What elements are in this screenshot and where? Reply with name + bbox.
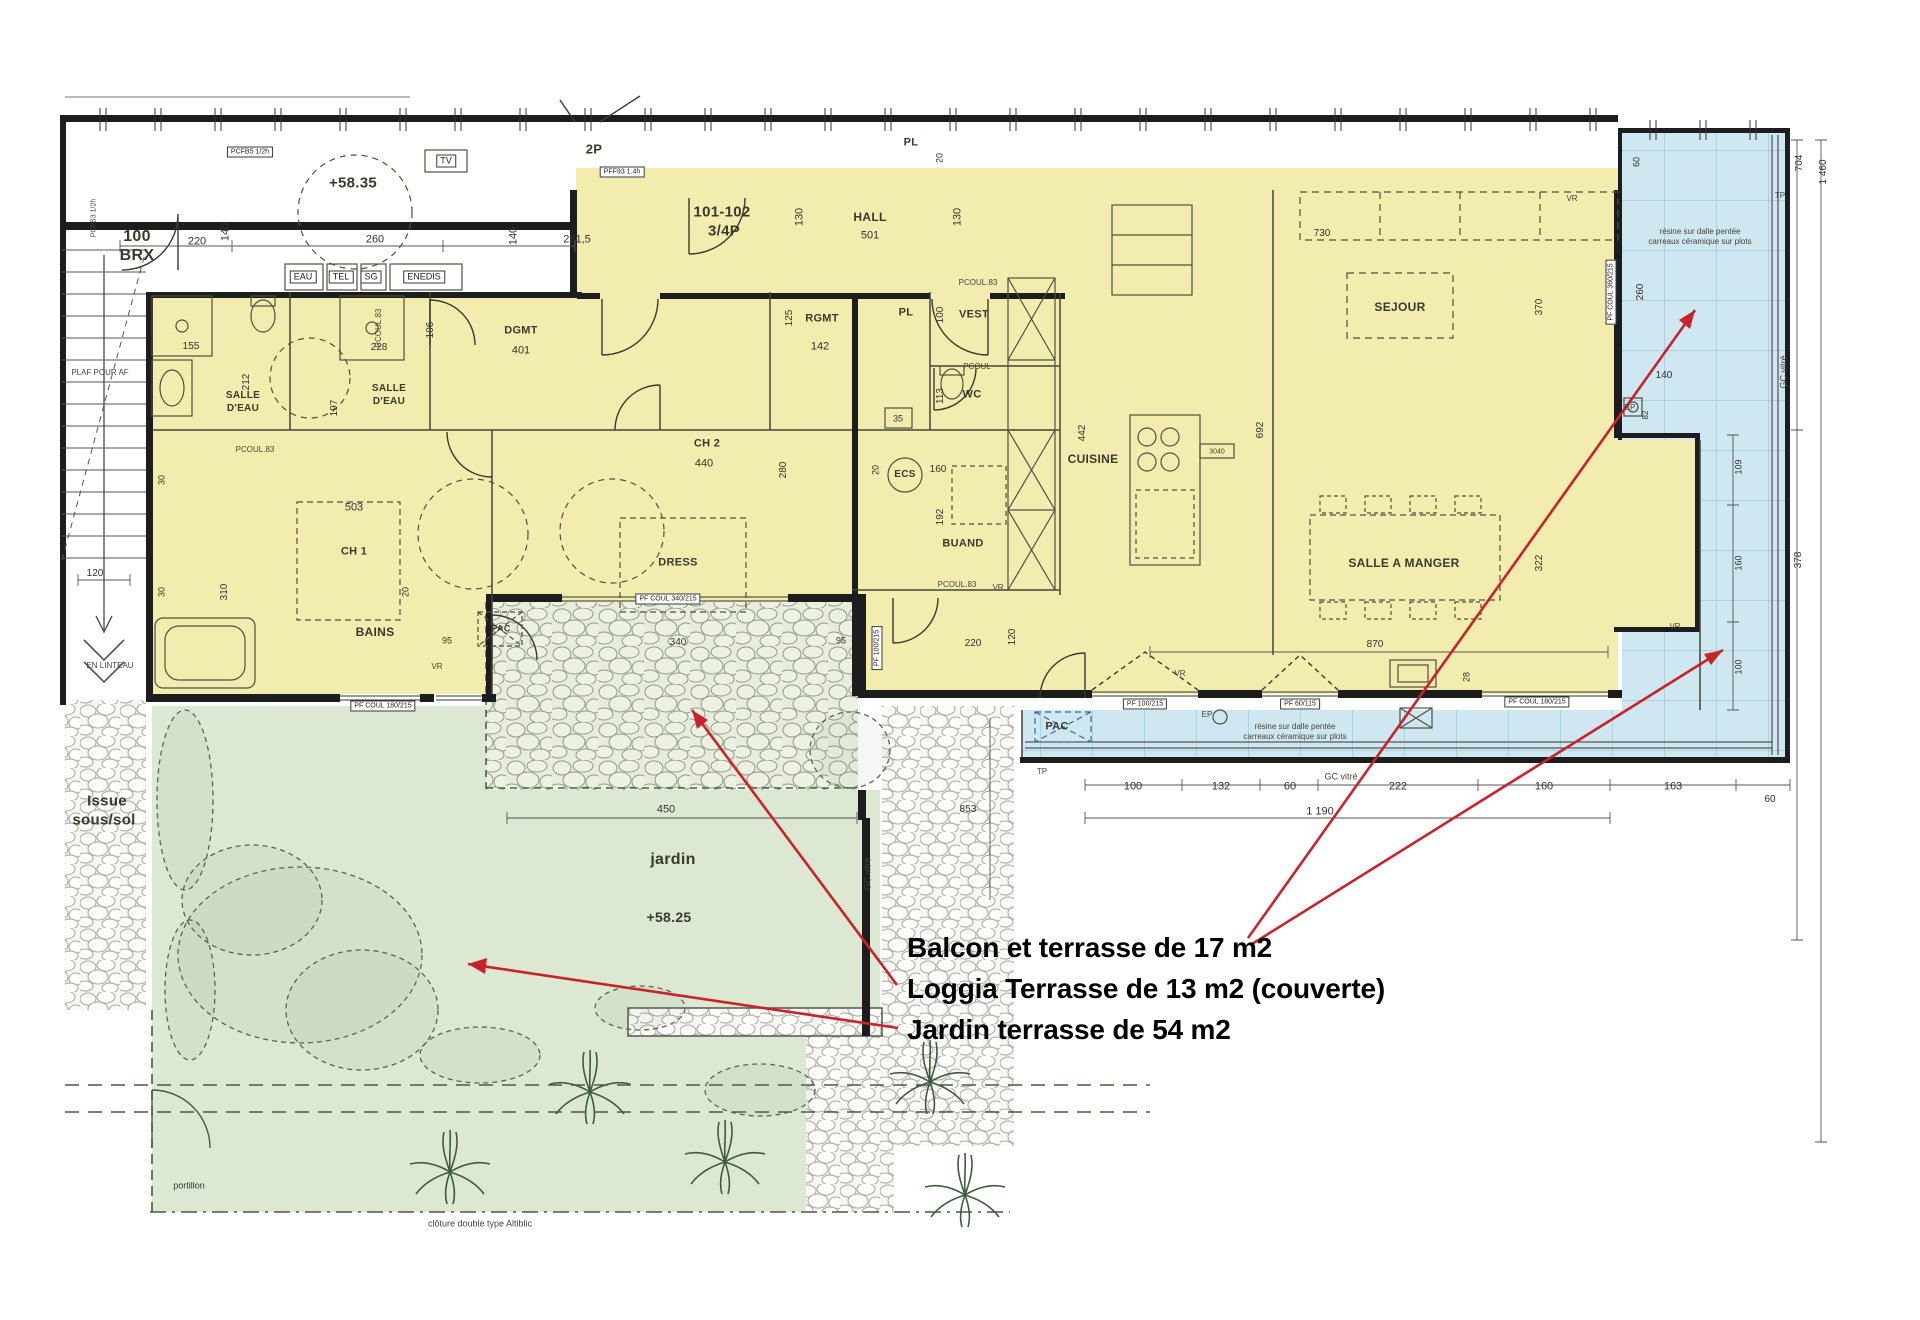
plan-label-91: 378	[1794, 552, 1804, 569]
plan-label-46: 155	[183, 342, 200, 352]
plan-label-41: 281,5	[563, 235, 591, 246]
plan-label-39: 140	[221, 223, 232, 241]
room-label-ch2: CH 2	[694, 439, 720, 450]
plan-label-79: 60	[1284, 782, 1296, 793]
plan-label-92: 109	[1735, 459, 1744, 474]
plan-label-72: 95	[442, 637, 452, 646]
pac-label-stone: PAC	[491, 625, 510, 634]
plan-label-126: ENEDIS	[403, 271, 445, 284]
plan-label-124: TEL	[329, 271, 354, 284]
plan-label-88: 82	[1642, 411, 1650, 420]
plan-label-77: 100	[1124, 782, 1142, 793]
plan-label-75: 450	[657, 805, 675, 816]
plan-label-108: VR	[1566, 195, 1577, 203]
plan-label-73: 340	[670, 638, 687, 648]
plan-label-11: 401	[512, 346, 530, 357]
plan-label-71: 280	[779, 462, 789, 479]
plan-label-83: 1 190	[1306, 807, 1334, 818]
plan-label-128: PCFB5 1/2h	[227, 147, 273, 158]
plan-label-43: 20	[936, 153, 945, 163]
level-corridor: +58.35	[329, 176, 377, 191]
plan-label-31: sous/sol	[72, 813, 135, 828]
plan-label-114: GC vitré	[1780, 355, 1789, 388]
room-label-wc: WC	[963, 390, 982, 401]
issue-sous-sol-label: Issue	[87, 794, 127, 809]
plan-label-70: 310	[220, 584, 230, 601]
plan-label-25: 503	[345, 503, 363, 514]
plan-label-80: 222	[1389, 782, 1407, 793]
plan-label-1: BRX	[120, 248, 155, 264]
ecs-label: ECS	[894, 470, 915, 480]
plan-label-36: PL	[904, 138, 919, 149]
plan-label-62: 322	[1535, 555, 1545, 572]
plan-label-59: 692	[1256, 422, 1266, 439]
plan-label-38: 220	[188, 237, 206, 248]
plan-label-89: 704	[1795, 155, 1805, 172]
floor-plan: 100BRX101-1023/4PHALL501SALLED'EAUSALLED…	[0, 0, 1920, 1320]
room-label-hall: HALL	[853, 211, 886, 223]
plan-label-76: 853	[960, 805, 977, 815]
plan-label-97: PCOUL.83	[236, 446, 275, 454]
plan-label-60: 730	[1314, 229, 1331, 239]
plan-label-9: D'EAU	[373, 397, 405, 407]
plan-label-93: 160	[1735, 555, 1744, 570]
plan-label-44: 130	[795, 208, 806, 226]
plan-label-54: 35	[893, 415, 903, 424]
plan-label-74: 95	[836, 637, 846, 646]
room-label-buand: BUAND	[942, 539, 983, 550]
plan-label-98: PCOUL.83	[375, 309, 383, 348]
plan-label-52: 100	[936, 307, 946, 324]
plan-label-81: 160	[1535, 782, 1553, 793]
plan-label-85: 260	[1636, 284, 1646, 301]
room-label-bains: BAINS	[356, 626, 395, 638]
plan-label-109: VR	[1669, 623, 1680, 631]
plan-label-103: EN LINTEAU	[86, 662, 133, 670]
plan-label-118: résine sur dalle pentée	[1255, 723, 1336, 731]
room-label-vest: VEST	[959, 310, 989, 321]
plan-label-66: 28	[1463, 672, 1472, 682]
plan-label-61: 370	[1535, 299, 1545, 316]
portillon-label: portillon	[173, 1182, 205, 1191]
plan-label-107: EP	[1625, 404, 1636, 412]
plan-label-133: PF 100/215	[1123, 699, 1167, 710]
plan-label-105: TP	[1775, 192, 1785, 200]
plan-label-55: 160	[930, 465, 947, 475]
plan-label-40: 260	[366, 235, 384, 246]
plan-label-110: VR	[992, 584, 1003, 592]
plan-label-67: 30	[158, 475, 167, 485]
room-label-salle-eau-1: SALLE	[226, 391, 260, 401]
plan-label-95: 20	[402, 587, 411, 597]
plan-label-78: 132	[1212, 782, 1230, 793]
plan-label-104: TP	[1037, 768, 1047, 776]
plan-label-106: EP	[1202, 711, 1213, 719]
plan-label-57: 192	[936, 509, 946, 526]
plan-label-131: PF COUL 340/215	[635, 594, 700, 605]
plan-label-22: 440	[695, 459, 713, 470]
level-jardin: +58.25	[646, 910, 691, 924]
plan-label-47: 212	[242, 374, 252, 391]
plan-label-69: 120	[87, 569, 104, 579]
plan-label-49: 197	[330, 400, 340, 417]
plan-label-63: 870	[1367, 640, 1384, 650]
plan-label-53: 113	[936, 388, 946, 404]
plan-label-65: 120	[1008, 629, 1018, 646]
plan-label-113: GC vitré	[1324, 773, 1357, 782]
plan-label-82: 163	[1664, 782, 1682, 793]
plan-label-56: 20	[872, 465, 881, 475]
plan-label-94: 100	[1735, 659, 1744, 674]
unit-label: 101-102	[693, 205, 750, 220]
plan-label-115: GC vitré	[864, 857, 873, 890]
plan-label-136: PF COUL 360/215	[1606, 259, 1617, 324]
room-label-rgmt: RGMT	[805, 314, 839, 325]
plan-label-3: 3/4P	[708, 224, 740, 239]
plan-label-68: 30	[158, 587, 167, 597]
room-label-ch1: CH 1	[341, 547, 367, 558]
plan-label-84: 60	[1764, 795, 1775, 805]
plan-label-120: 3040	[1209, 449, 1225, 456]
plan-label-50: 106	[426, 322, 436, 339]
plan-label-14: PL	[899, 308, 914, 319]
room-label-salle-eau-2: SALLE	[372, 384, 406, 394]
plan-label-121: clôture double type Altiblic	[428, 1220, 532, 1229]
plan-label-125: SG	[360, 271, 381, 284]
plan-label-132: PF 100/215	[872, 626, 883, 670]
plan-label-42: 140	[509, 227, 520, 245]
plan-label-130: PF COUL 180/215	[350, 701, 415, 712]
plan-label-134: PF 60/115	[1280, 699, 1320, 710]
annotation-loggia-terrasse: Loggia Terrasse de 13 m2 (couverte)	[907, 975, 1385, 1003]
plan-label-123: EAU	[290, 271, 317, 284]
annotation-jardin-terrasse: Jardin terrasse de 54 m2	[907, 1016, 1231, 1044]
plan-label-135: PF COUL 180/215	[1504, 697, 1569, 708]
room-label-dgmt-1: DGMT	[504, 326, 538, 337]
room-label-salle-a-manger: SALLE A MANGER	[1348, 557, 1459, 569]
plan-label-64: 220	[965, 639, 982, 649]
plan-label-5: 501	[861, 231, 879, 242]
plan-label-127: TV	[436, 155, 456, 168]
plan-label-129: PFF93 1.4h	[600, 167, 645, 178]
plan-label-102: PLAF POUR AF	[71, 369, 128, 377]
plan-label-7: D'EAU	[227, 404, 259, 414]
plan-label-101: PCOUL.83	[938, 581, 977, 589]
plan-label-35: 2P	[586, 143, 603, 156]
plan-label-51: 125	[785, 310, 795, 327]
plan-label-99: PCOUL.83	[959, 279, 998, 287]
plan-label-58: 442	[1078, 425, 1088, 442]
room-label-sejour: SEJOUR	[1374, 301, 1425, 313]
plan-labels: 100BRX101-1023/4PHALL501SALLED'EAUSALLED…	[0, 0, 1920, 1320]
plan-label-112: VR	[431, 663, 442, 671]
room-label-dress: DRESS	[658, 558, 697, 569]
plan-label-100: PCOUL	[963, 363, 991, 371]
pac-label-blue: PAC	[1045, 722, 1068, 733]
plan-label-119: carreaux céramique sur plots	[1243, 733, 1346, 741]
plan-label-45: 130	[953, 208, 964, 226]
plan-label-86: 140	[1656, 371, 1673, 381]
plan-label-90: 1 460	[1819, 159, 1829, 184]
plan-label-111: VR	[1174, 670, 1185, 678]
plan-label-13: 142	[811, 342, 829, 353]
room-label-jardin: jardin	[650, 852, 695, 868]
annotation-balcon-terrasse: Balcon et terrasse de 17 m2	[907, 934, 1272, 962]
room-label-cuisine: CUISINE	[1068, 453, 1119, 465]
plan-label-117: carreaux céramique sur plots	[1648, 238, 1751, 246]
plan-label-116: résine sur dalle pentée	[1660, 228, 1741, 236]
room-label-100-brx: 100	[123, 229, 151, 245]
plan-label-87: 60	[1633, 157, 1642, 167]
plan-label-122: PCPB3 1/2h	[91, 199, 98, 238]
